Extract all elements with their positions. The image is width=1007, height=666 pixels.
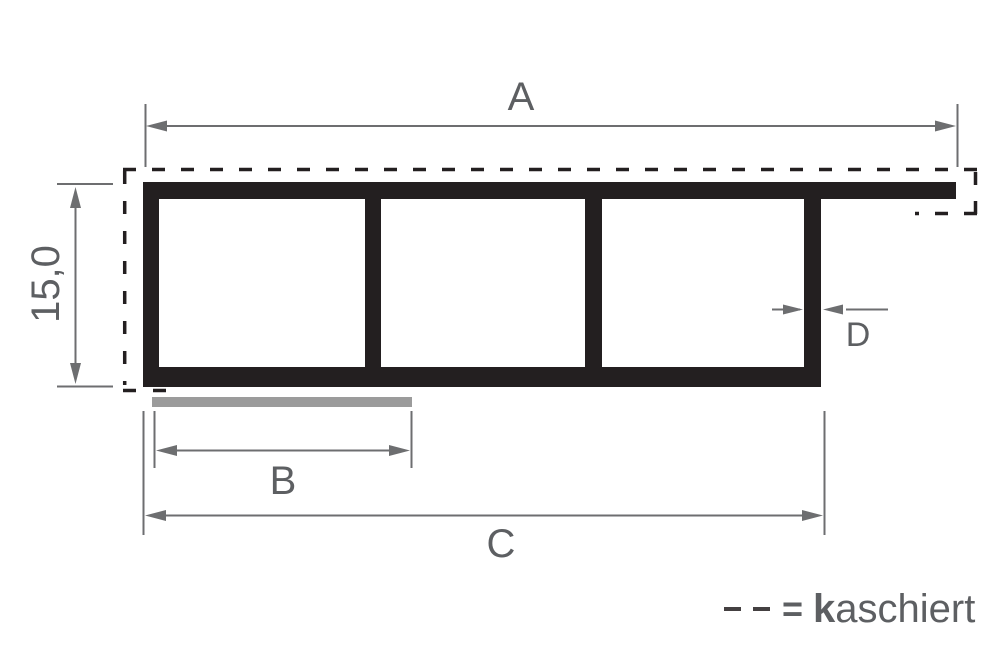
profile-top-flange	[143, 182, 956, 199]
dim-d-arrow-left-icon	[823, 305, 843, 315]
dimension-c	[144, 411, 825, 535]
dim-c-label: C	[487, 524, 516, 564]
dim-a-label: A	[508, 77, 535, 117]
profile-left-wall	[143, 199, 159, 387]
legend-term-rest: aschiert	[835, 587, 975, 631]
drawing-canvas: A 15,0 B C D = kaschiert	[0, 0, 1007, 666]
dim-a-arrow-right-icon	[935, 121, 956, 132]
dim-b-arrow-right-icon	[389, 445, 410, 456]
profile-mid-wall-1	[365, 199, 381, 367]
dim-b-label: B	[270, 461, 297, 501]
legend: = kaschiert	[724, 589, 975, 629]
legend-dash-icon	[724, 607, 741, 611]
profile-right-wall	[804, 199, 821, 387]
dim-a-arrow-left-icon	[146, 121, 167, 132]
legend-equals-sign: =	[782, 591, 803, 627]
dim-d-arrow-right-icon	[783, 305, 803, 315]
dim-c-arrow-right-icon	[802, 510, 823, 521]
legend-term-initial: k	[813, 587, 835, 631]
legend-dash-icon	[753, 607, 770, 611]
dim-height-label: 15,0	[26, 245, 66, 323]
dimension-a	[146, 104, 958, 167]
dim-d-label: D	[846, 318, 871, 352]
dimension-d	[772, 305, 888, 315]
dim-c-arrow-left-icon	[145, 510, 166, 521]
profile-bottom-bar	[143, 367, 821, 387]
profile-mid-wall-2	[585, 199, 602, 367]
profile-body	[143, 182, 956, 387]
dim-height-arrow-down-icon	[70, 363, 81, 384]
kaschiert-dashed-outline	[123, 170, 977, 391]
dim-b-arrow-left-icon	[156, 445, 177, 456]
laminate-strip-bar	[152, 397, 412, 407]
dim-height-arrow-up-icon	[70, 187, 81, 208]
legend-term: kaschiert	[813, 589, 975, 629]
